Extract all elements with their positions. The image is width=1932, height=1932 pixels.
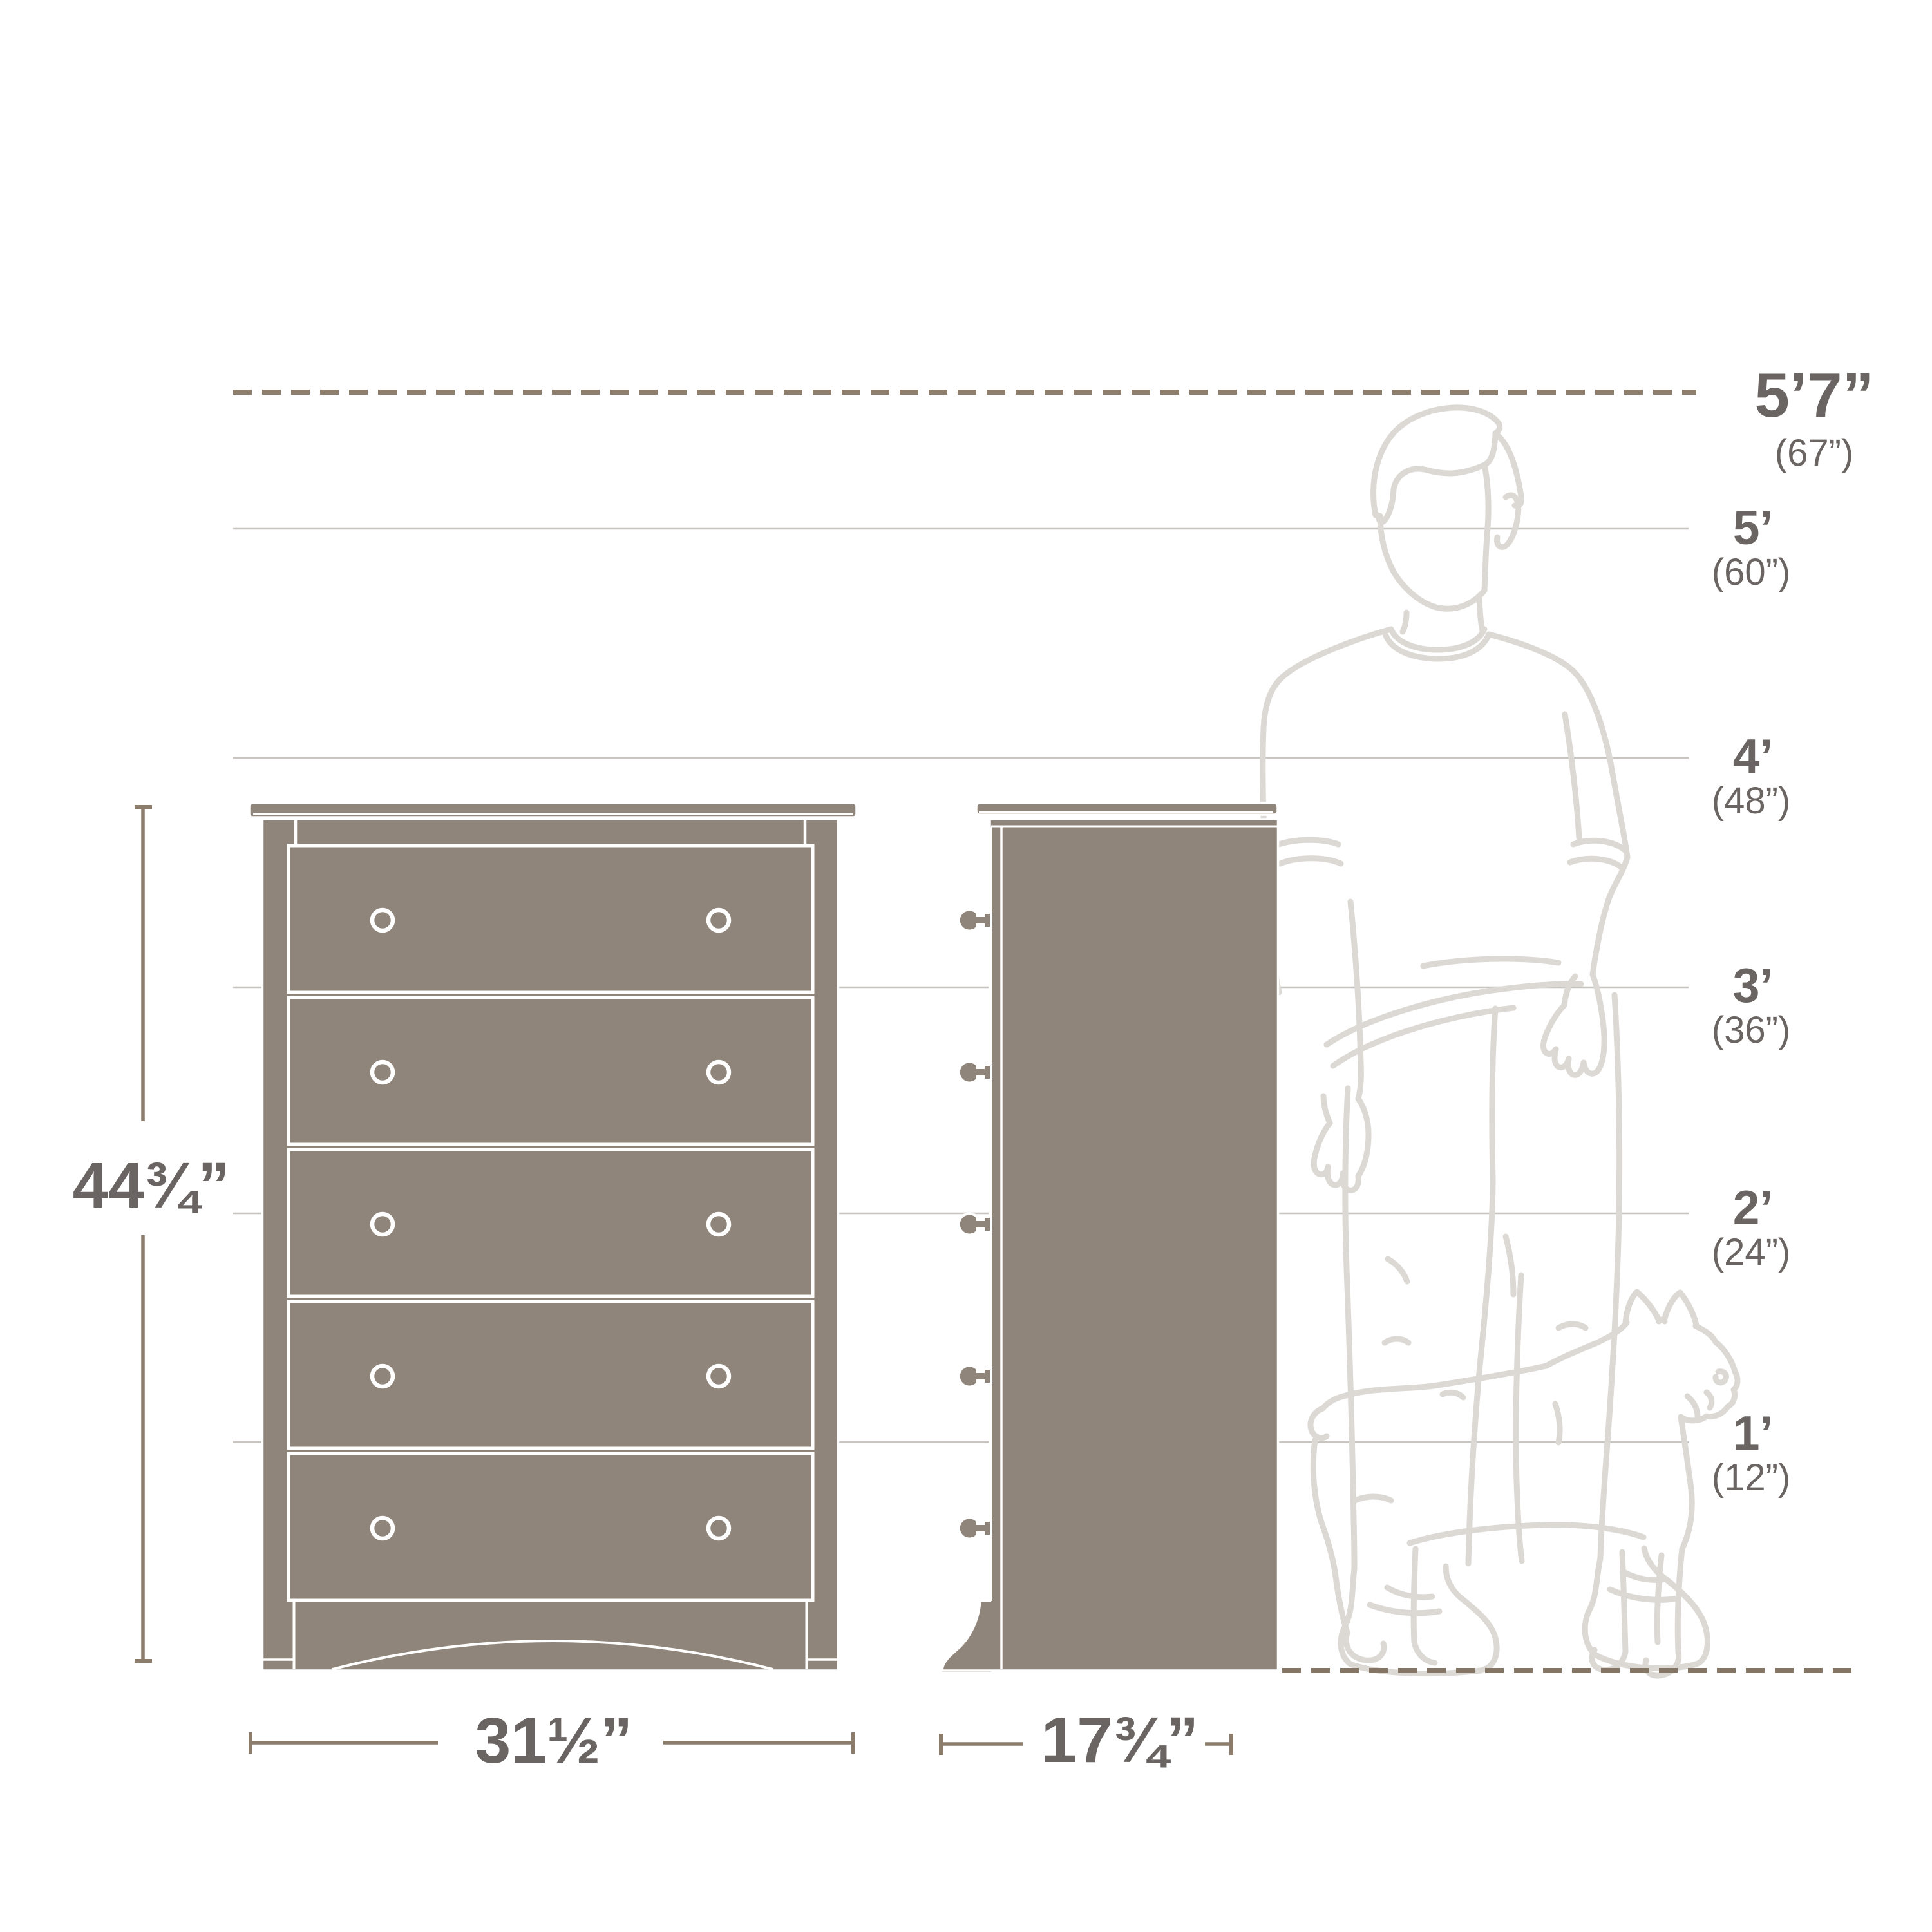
- svg-text:(48”): (48”): [1712, 780, 1790, 822]
- svg-text:(36”): (36”): [1712, 1009, 1790, 1051]
- svg-text:5’7”: 5’7”: [1754, 359, 1873, 430]
- svg-text:2’: 2’: [1733, 1180, 1774, 1235]
- svg-text:(24”): (24”): [1712, 1231, 1790, 1273]
- svg-text:3’: 3’: [1733, 958, 1774, 1012]
- svg-text:1’: 1’: [1733, 1406, 1774, 1460]
- svg-text:17¾”: 17¾”: [1041, 1704, 1199, 1776]
- svg-text:31½”: 31½”: [475, 1705, 633, 1777]
- svg-text:(60”): (60”): [1712, 551, 1790, 593]
- svg-text:44¾”: 44¾”: [73, 1150, 231, 1222]
- svg-text:5’: 5’: [1733, 500, 1774, 554]
- svg-text:4’: 4’: [1733, 729, 1774, 783]
- svg-text:(12”): (12”): [1712, 1457, 1790, 1499]
- svg-text:(67”): (67”): [1775, 432, 1853, 474]
